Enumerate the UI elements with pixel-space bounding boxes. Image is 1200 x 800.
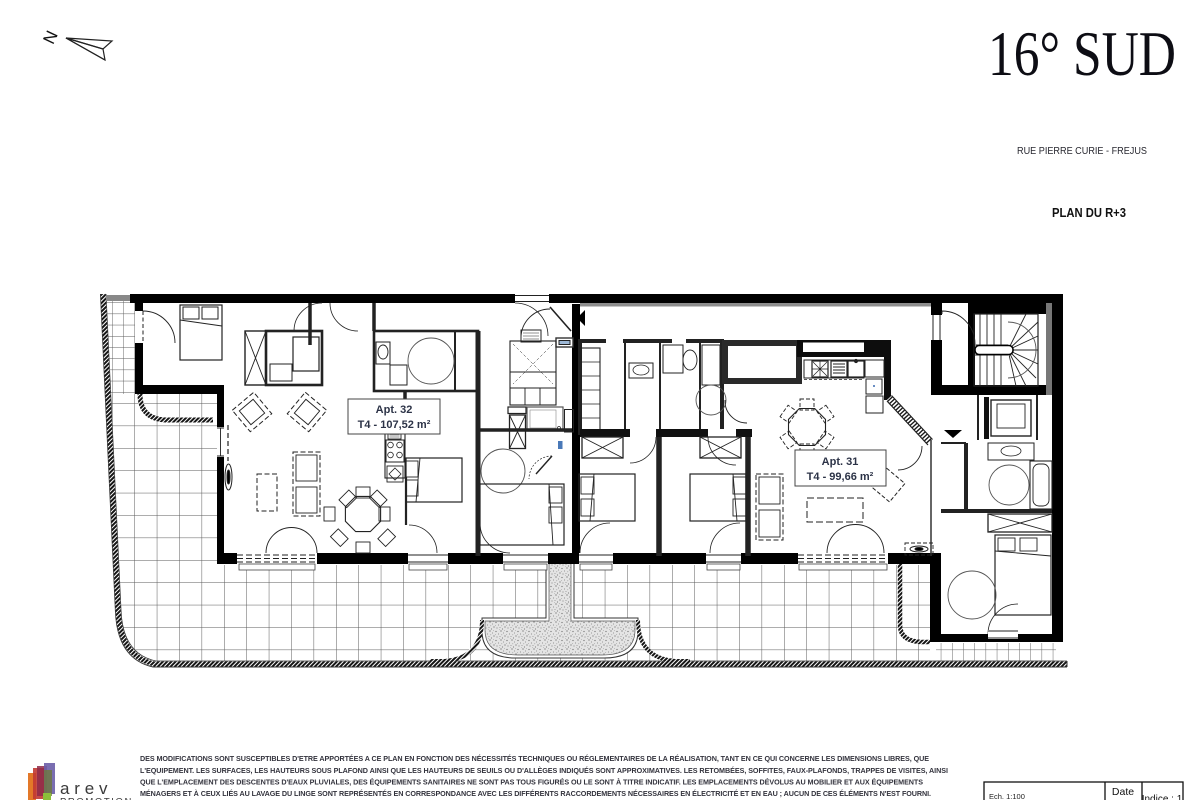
svg-text:Apt. 31: Apt. 31 xyxy=(822,456,859,468)
svg-text:T4 - 107,52 m²: T4 - 107,52 m² xyxy=(358,419,431,431)
svg-text:MÉNAGERS ET À CEUX LIÉS AU LAV: MÉNAGERS ET À CEUX LIÉS AU LAVAGE DU LIN… xyxy=(140,789,931,798)
svg-text:N: N xyxy=(39,28,61,47)
svg-text:Indice : 1: Indice : 1 xyxy=(1142,794,1183,800)
svg-text:RUE PIERRE CURIE - FREJUS: RUE PIERRE CURIE - FREJUS xyxy=(1017,146,1147,157)
svg-text:arev: arev xyxy=(60,779,112,798)
svg-text:QUE L'EMPLACEMENT DES DESCENTE: QUE L'EMPLACEMENT DES DESCENTES D'EAUX P… xyxy=(140,777,923,786)
svg-text:16° SUD: 16° SUD xyxy=(988,18,1176,89)
svg-text:T4 - 99,66 m²: T4 - 99,66 m² xyxy=(807,471,874,483)
svg-text:PLAN DU R+3: PLAN DU R+3 xyxy=(1052,205,1126,220)
svg-text:PROMOTION: PROMOTION xyxy=(60,797,133,800)
svg-text:Date: Date xyxy=(1112,786,1134,798)
svg-text:Apt. 32: Apt. 32 xyxy=(376,404,413,416)
svg-text:L'EQUIPEMENT. LES SURFACES, LE: L'EQUIPEMENT. LES SURFACES, LES HAUTEURS… xyxy=(140,766,948,775)
svg-text:DES MODIFICATIONS SONT SUSCEPT: DES MODIFICATIONS SONT SUSCEPTIBLES D'ET… xyxy=(140,754,929,763)
svg-text:Ech. 1:100: Ech. 1:100 xyxy=(989,792,1025,800)
